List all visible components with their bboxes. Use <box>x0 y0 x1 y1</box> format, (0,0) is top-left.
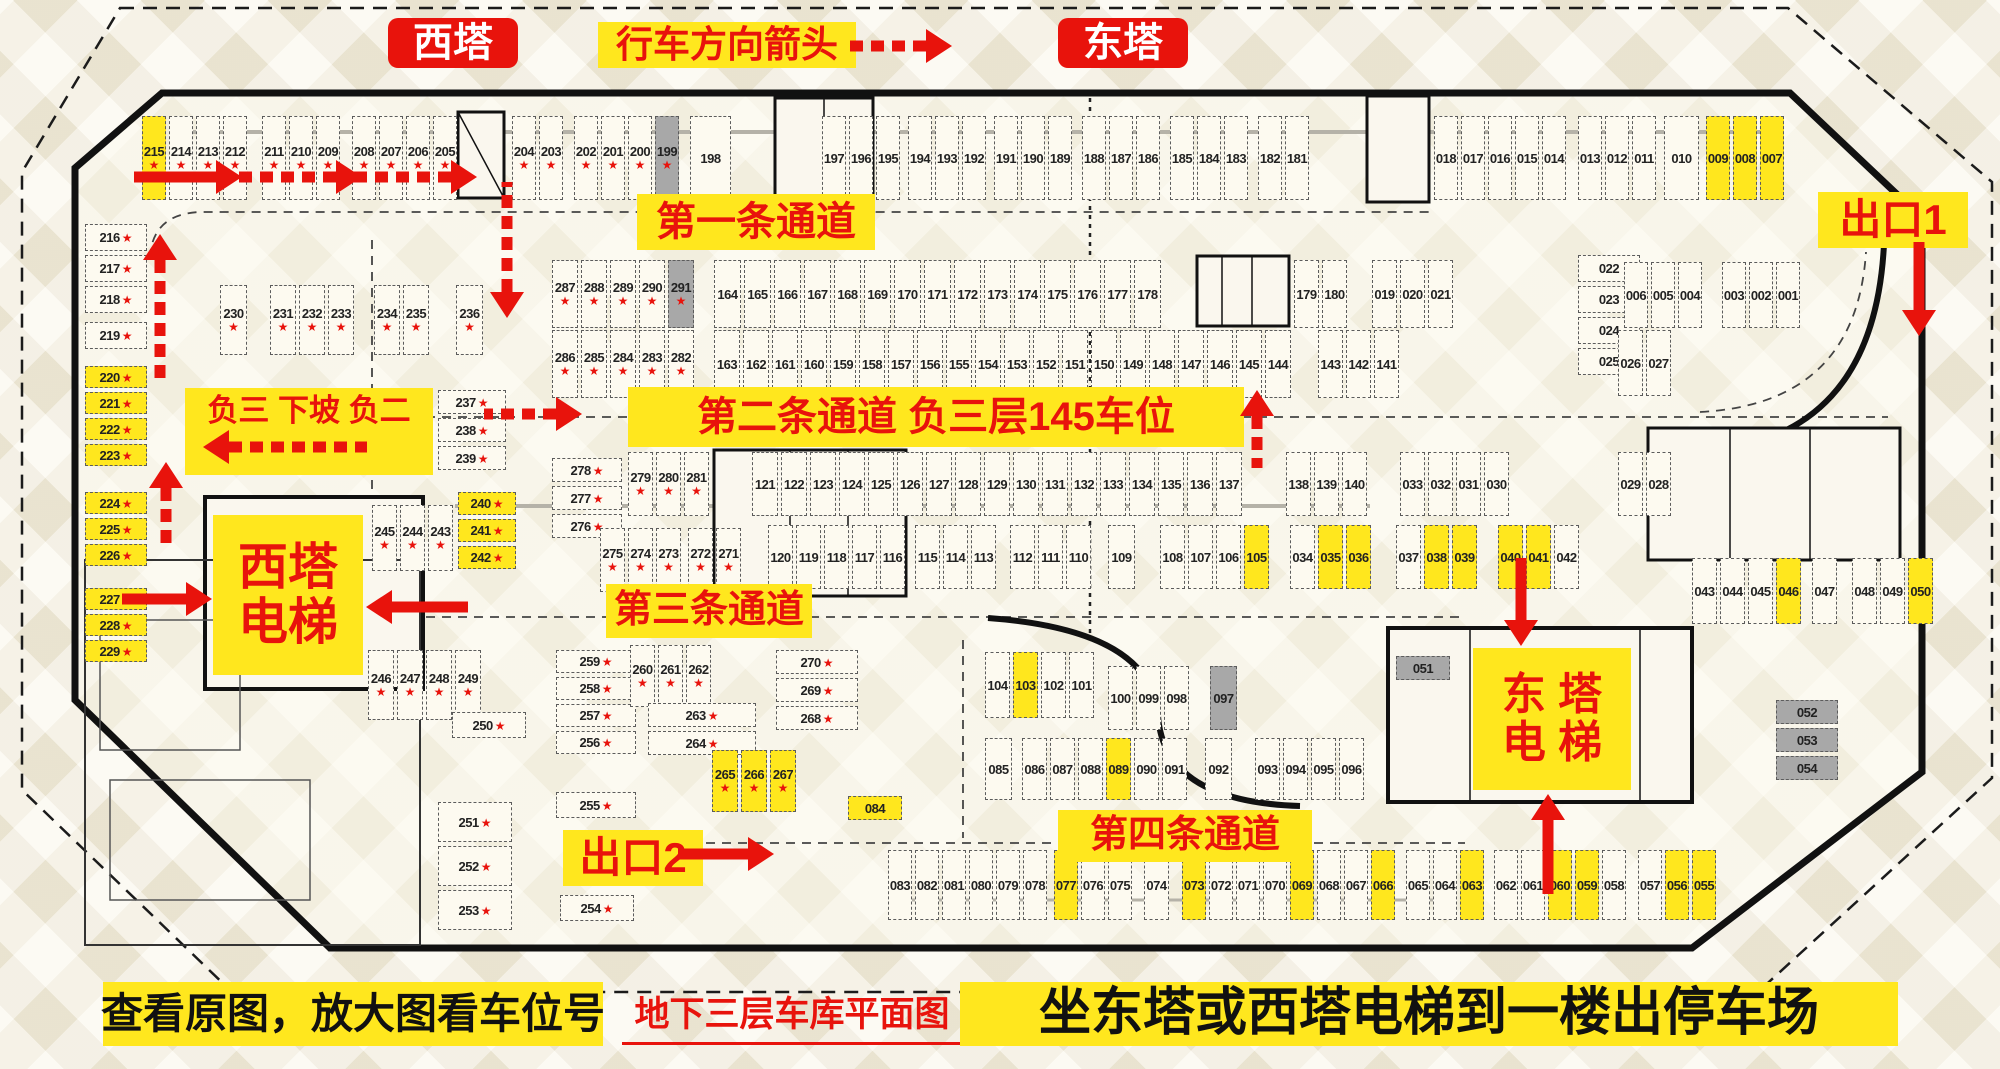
parking-stall-120: 120 <box>768 525 793 589</box>
parking-group-left-227: 227★228★229★ <box>85 588 147 666</box>
parking-group-br-065: 065064063 <box>1406 850 1487 920</box>
star-icon: ★ <box>230 159 241 171</box>
parking-stall-281: 281★ <box>684 452 709 516</box>
parking-stall-061: 061 <box>1521 850 1545 920</box>
parking-stall-202: 202★ <box>574 116 598 200</box>
stall-number: 247 <box>400 672 420 685</box>
stall-number: 074 <box>1146 879 1166 892</box>
parking-stall-252: 252★ <box>438 846 512 886</box>
stall-number: 268 <box>801 712 821 725</box>
stall-number: 086 <box>1024 763 1044 776</box>
stall-number: 140 <box>1344 478 1364 491</box>
stall-number: 218 <box>100 293 120 306</box>
star-icon: ★ <box>635 485 646 497</box>
parking-stall-060: 060 <box>1548 850 1572 920</box>
parking-stall-228: 228★ <box>85 614 147 636</box>
star-icon: ★ <box>723 561 734 573</box>
stall-number: 082 <box>917 879 937 892</box>
exit2-label: 出口2 <box>563 830 703 886</box>
parking-stall-028: 028 <box>1646 452 1671 516</box>
parking-stall-137: 137 <box>1216 452 1242 516</box>
parking-group-bm-100: 100099098 <box>1108 666 1192 730</box>
stall-number: 192 <box>964 152 984 165</box>
lane4-label: 第四条通道 <box>1058 810 1312 862</box>
parking-group-b-254: 254★ <box>560 895 634 925</box>
parking-stall-237: 237★ <box>438 390 506 414</box>
stall-number: 211 <box>264 145 283 158</box>
stall-number: 189 <box>1050 152 1070 165</box>
parking-stall-255: 255★ <box>556 792 636 818</box>
parking-group-top-013: 013012011 <box>1578 116 1659 200</box>
parking-stall-174: 174 <box>1014 260 1041 328</box>
parking-stall-080: 080 <box>969 850 993 920</box>
star-icon: ★ <box>379 539 390 551</box>
parking-stall-106: 106 <box>1216 525 1241 589</box>
stall-number: 125 <box>871 478 891 491</box>
parking-stall-257: 257★ <box>556 704 636 727</box>
parking-stall-239: 239★ <box>438 446 506 470</box>
stall-number: 231 <box>273 307 293 320</box>
stall-number: 193 <box>937 152 957 165</box>
parking-stall-221: 221★ <box>85 392 147 414</box>
stall-number: 164 <box>717 288 737 301</box>
stall-number: 206 <box>408 145 428 158</box>
stall-number: 222 <box>100 423 120 436</box>
star-icon: ★ <box>602 710 613 722</box>
stall-number: 106 <box>1218 551 1238 564</box>
parking-group-top-208: 208★207★ <box>352 116 406 200</box>
star-icon: ★ <box>386 159 397 171</box>
stall-number: 085 <box>988 763 1008 776</box>
stall-number: 272 <box>690 547 710 560</box>
parking-stall-181: 181 <box>1285 116 1309 200</box>
stall-number: 039 <box>1454 551 1474 564</box>
stall-number: 120 <box>770 551 790 564</box>
parking-stall-176: 176 <box>1074 260 1101 328</box>
stall-number: 216 <box>100 231 120 244</box>
parking-stall-017: 017 <box>1461 116 1485 200</box>
star-icon: ★ <box>376 686 387 698</box>
parking-stall-097: 097 <box>1210 666 1237 730</box>
parking-stall-165: 165 <box>744 260 771 328</box>
parking-stall-127: 127 <box>926 452 952 516</box>
stall-number: 276 <box>571 520 591 533</box>
stall-number: 225 <box>100 523 120 536</box>
stall-number: 022 <box>1599 262 1619 275</box>
parking-group-n-109: 109 <box>1108 525 1138 589</box>
stall-number: 121 <box>755 478 775 491</box>
stall-number: 290 <box>642 281 662 294</box>
parking-stall-014: 014 <box>1542 116 1566 200</box>
stall-number: 156 <box>920 358 940 371</box>
parking-stall-218: 218★ <box>85 286 147 313</box>
parking-stall-045: 045 <box>1748 558 1773 624</box>
stall-number: 128 <box>958 478 978 491</box>
parking-group-n-108: 108107106105 <box>1160 525 1272 589</box>
parking-stall-214: 214★ <box>169 116 193 200</box>
stall-number: 064 <box>1435 879 1455 892</box>
parking-stall-124: 124 <box>839 452 865 516</box>
star-icon: ★ <box>676 295 687 307</box>
parking-stall-178: 178 <box>1134 260 1161 328</box>
star-icon: ★ <box>413 159 424 171</box>
parking-stall-111: 111 <box>1038 525 1063 589</box>
parking-stall-288: 288★ <box>581 260 607 328</box>
stall-number: 252 <box>459 860 479 873</box>
star-icon: ★ <box>607 561 618 573</box>
parking-stall-008: 008 <box>1733 116 1757 200</box>
parking-stall-063: 063 <box>1460 850 1484 920</box>
parking-stall-249: 249★ <box>455 650 481 720</box>
stall-number: 159 <box>833 358 853 371</box>
parking-stall-201: 201★ <box>601 116 625 200</box>
stall-number: 171 <box>927 288 947 301</box>
parking-stall-068: 068 <box>1317 850 1341 920</box>
stall-number: 051 <box>1413 662 1433 675</box>
parking-stall-005: 005 <box>1651 262 1675 328</box>
parking-group-b-270: 270★269★268★ <box>776 650 858 734</box>
parking-stall-203: 203★ <box>539 116 563 200</box>
parking-stall-215: 215★ <box>142 116 166 200</box>
star-icon: ★ <box>122 524 133 536</box>
stall-number: 013 <box>1580 152 1600 165</box>
parking-group-b-084: 084 <box>848 796 902 824</box>
parking-stall-043: 043 <box>1692 558 1717 624</box>
star-icon: ★ <box>647 365 658 377</box>
parking-stall-140: 140 <box>1342 452 1367 516</box>
parking-group-n-272: 272★271★ <box>688 528 744 592</box>
parking-stall-143: 143 <box>1318 330 1343 398</box>
garage-floor-plan: 215★214★213★212★211★210★209★208★207★206★… <box>0 0 2000 1069</box>
parking-group-n-034: 034035036 <box>1290 525 1374 589</box>
parking-stall-229: 229★ <box>85 640 147 662</box>
star-icon: ★ <box>663 561 674 573</box>
stall-number: 237 <box>456 396 476 409</box>
stall-number: 243 <box>430 525 450 538</box>
stall-number: 104 <box>987 679 1007 692</box>
parking-group-bm-097: 097 <box>1210 666 1240 730</box>
stall-number: 014 <box>1544 152 1564 165</box>
stall-number: 200 <box>630 145 650 158</box>
parking-stall-268: 268★ <box>776 706 858 730</box>
stall-number: 114 <box>946 551 965 564</box>
parking-stall-269: 269★ <box>776 678 858 702</box>
parking-stall-009: 009 <box>1706 116 1730 200</box>
stall-number: 168 <box>837 288 857 301</box>
stall-number: 162 <box>746 358 766 371</box>
parking-stall-231: 231★ <box>270 285 296 355</box>
star-icon: ★ <box>603 903 614 915</box>
parking-stall-078: 078 <box>1023 850 1047 920</box>
stall-number: 031 <box>1458 478 1478 491</box>
parking-stall-040: 040 <box>1498 525 1523 589</box>
stall-number: 245 <box>374 525 394 538</box>
star-icon: ★ <box>602 656 613 668</box>
stall-number: 080 <box>971 879 991 892</box>
stall-number: 136 <box>1190 478 1210 491</box>
star-icon: ★ <box>478 397 489 409</box>
star-icon: ★ <box>635 159 646 171</box>
stall-number: 138 <box>1288 478 1308 491</box>
parking-stall-195: 195 <box>876 116 900 200</box>
parking-stall-093: 093 <box>1255 738 1280 800</box>
stall-number: 169 <box>867 288 887 301</box>
parking-stall-044: 044 <box>1720 558 1745 624</box>
parking-stall-212: 212★ <box>223 116 247 200</box>
stall-number: 175 <box>1047 288 1067 301</box>
stall-number: 002 <box>1751 289 1771 302</box>
parking-stall-105: 105 <box>1244 525 1269 589</box>
parking-stall-084: 084 <box>848 796 902 820</box>
parking-stall-260: 260★ <box>630 645 655 707</box>
parking-stall-205: 205★ <box>433 116 457 200</box>
stall-number: 259 <box>580 655 600 668</box>
stall-number: 183 <box>1226 152 1246 165</box>
parking-group-rb-026: 026027 <box>1618 330 1674 396</box>
stall-number: 148 <box>1152 358 1172 371</box>
stall-number: 030 <box>1486 478 1506 491</box>
stall-number: 007 <box>1762 152 1782 165</box>
parking-stall-142: 142 <box>1346 330 1371 398</box>
stall-number: 184 <box>1199 152 1219 165</box>
parking-stall-251: 251★ <box>438 802 512 842</box>
stall-number: 235 <box>406 307 426 320</box>
stall-number: 004 <box>1680 289 1700 302</box>
stall-number: 287 <box>555 281 575 294</box>
stall-number: 043 <box>1694 585 1714 598</box>
parking-stall-002: 002 <box>1749 262 1773 328</box>
floor-plan-title: 地下三层车库平面图 <box>622 988 962 1045</box>
star-icon: ★ <box>481 817 492 829</box>
stall-number: 066 <box>1373 879 1393 892</box>
parking-stall-278: 278★ <box>552 458 622 482</box>
parking-stall-119: 119 <box>796 525 821 589</box>
stall-number: 172 <box>957 288 977 301</box>
stall-number: 020 <box>1402 288 1422 301</box>
stall-number: 045 <box>1750 585 1770 598</box>
parking-stall-189: 189 <box>1048 116 1072 200</box>
stall-number: 132 <box>1074 478 1094 491</box>
parking-group-bm-085: 085 <box>985 738 1015 800</box>
parking-stall-033: 033 <box>1400 452 1425 516</box>
parking-stall-289: 289★ <box>610 260 636 328</box>
parking-stall-254: 254★ <box>560 895 634 921</box>
parking-group-top-182: 182181 <box>1258 116 1312 200</box>
parking-stall-089: 089 <box>1106 738 1131 800</box>
parking-stall-054: 054 <box>1776 756 1838 780</box>
stall-number: 233 <box>331 307 351 320</box>
stall-number: 001 <box>1778 289 1798 302</box>
parking-stall-220: 220★ <box>85 366 147 388</box>
parking-stall-092: 092 <box>1205 738 1232 800</box>
parking-stall-131: 131 <box>1042 452 1068 516</box>
star-icon: ★ <box>176 159 187 171</box>
stall-number: 103 <box>1015 679 1035 692</box>
stall-number: 018 <box>1436 152 1456 165</box>
star-icon: ★ <box>481 905 492 917</box>
parking-stall-213: 213★ <box>196 116 220 200</box>
parking-stall-041: 041 <box>1526 525 1551 589</box>
parking-stall-196: 196 <box>849 116 873 200</box>
stall-number: 015 <box>1517 152 1537 165</box>
stall-number: 042 <box>1556 551 1576 564</box>
parking-group-top-202: 202★201★200★199★ <box>574 116 682 200</box>
parking-stall-217: 217★ <box>85 255 147 282</box>
parking-group-c-143: 143142141 <box>1318 330 1402 398</box>
star-icon: ★ <box>720 782 731 794</box>
parking-stall-211: 211★ <box>262 116 286 200</box>
stall-number: 255 <box>580 799 600 812</box>
parking-stall-248: 248★ <box>426 650 452 720</box>
stall-number: 196 <box>851 152 871 165</box>
parking-group-b-246: 246★247★248★249★ <box>368 650 484 720</box>
stall-number: 241 <box>471 524 491 537</box>
stall-number: 127 <box>929 478 949 491</box>
parking-stall-037: 037 <box>1396 525 1421 589</box>
parking-group-br-062: 062061060059058 <box>1494 850 1629 920</box>
stall-number: 087 <box>1052 763 1072 776</box>
stall-number: 154 <box>978 358 998 371</box>
star-icon: ★ <box>228 321 239 333</box>
stall-number: 093 <box>1257 763 1277 776</box>
parking-group-n-120: 120119118117116 <box>768 525 908 589</box>
parking-stall-223: 223★ <box>85 444 147 466</box>
star-icon: ★ <box>823 713 834 725</box>
parking-stall-277: 277★ <box>552 486 622 510</box>
star-icon: ★ <box>665 677 676 689</box>
west-elevator-label: 西塔 电梯 <box>213 515 363 675</box>
stall-number: 111 <box>1041 551 1060 564</box>
stall-number: 060 <box>1550 879 1570 892</box>
star-icon: ★ <box>307 321 318 333</box>
stall-number: 006 <box>1626 289 1646 302</box>
parking-stall-113: 113 <box>971 525 996 589</box>
parking-stall-038: 038 <box>1424 525 1449 589</box>
star-icon: ★ <box>581 159 592 171</box>
parking-stall-138: 138 <box>1286 452 1311 516</box>
parking-stall-247: 247★ <box>397 650 423 720</box>
parking-group-c-019: 019020021 <box>1372 260 1456 328</box>
parking-stall-136: 136 <box>1187 452 1213 516</box>
stall-number: 069 <box>1292 879 1312 892</box>
stall-number: 050 <box>1910 585 1930 598</box>
parking-stall-133: 133 <box>1100 452 1126 516</box>
star-icon: ★ <box>122 450 133 462</box>
stall-number: 157 <box>891 358 911 371</box>
stall-number: 056 <box>1667 879 1687 892</box>
stall-number: 021 <box>1430 288 1450 301</box>
parking-stall-007: 007 <box>1760 116 1784 200</box>
stall-number: 058 <box>1604 879 1624 892</box>
stall-number: 212 <box>225 145 245 158</box>
parking-group-top-197: 197196195 <box>822 116 903 200</box>
star-icon: ★ <box>495 720 506 732</box>
parking-stall-238: 238★ <box>438 418 506 442</box>
parking-stall-082: 082 <box>915 850 939 920</box>
west-elevator-line2: 电梯 <box>238 595 338 650</box>
parking-stall-052: 052 <box>1776 700 1838 724</box>
parking-group-row2-231: 231★232★233★ <box>270 285 357 355</box>
stall-number: 041 <box>1528 551 1548 564</box>
parking-stall-110: 110 <box>1066 525 1091 589</box>
stall-number: 149 <box>1123 358 1143 371</box>
stall-number: 034 <box>1292 551 1312 564</box>
stall-number: 038 <box>1426 551 1446 564</box>
parking-stall-170: 170 <box>894 260 921 328</box>
parking-group-n-048: 048049050 <box>1852 558 1936 624</box>
stall-number: 049 <box>1882 585 1902 598</box>
parking-stall-035: 035 <box>1318 525 1343 589</box>
stall-number: 135 <box>1161 478 1181 491</box>
stall-number: 059 <box>1577 879 1597 892</box>
parking-stall-253: 253★ <box>438 890 512 930</box>
parking-group-c-164: 1641651661671681691701711721731741751761… <box>714 260 1164 328</box>
parking-stall-116: 116 <box>880 525 905 589</box>
stall-number: 025 <box>1599 355 1619 368</box>
stall-number: 165 <box>747 288 767 301</box>
parking-stall-034: 034 <box>1290 525 1315 589</box>
parking-stall-053: 053 <box>1776 728 1838 752</box>
star-icon: ★ <box>149 159 160 171</box>
parking-group-bm-051: 051 <box>1396 656 1450 684</box>
east-elevator-line2: 电 梯 <box>1502 719 1602 767</box>
parking-stall-036: 036 <box>1346 525 1371 589</box>
stall-number: 289 <box>613 281 633 294</box>
star-icon: ★ <box>122 594 133 606</box>
stall-number: 107 <box>1190 551 1210 564</box>
parking-stall-250: 250★ <box>452 712 526 738</box>
stall-number: 057 <box>1640 879 1660 892</box>
stall-number: 054 <box>1797 762 1817 775</box>
stall-number: 269 <box>801 684 821 697</box>
parking-stall-027: 027 <box>1646 330 1671 396</box>
parking-stall-081: 081 <box>942 850 966 920</box>
parking-stall-242: 242★ <box>458 546 516 569</box>
lane1-label: 第一条通道 <box>637 194 875 250</box>
parking-group-n-043: 043044045046 <box>1692 558 1804 624</box>
parking-group-top-191: 191190189 <box>994 116 1075 200</box>
parking-stall-004: 004 <box>1678 262 1702 328</box>
stall-number: 123 <box>813 478 833 491</box>
stall-number: 100 <box>1110 692 1130 705</box>
parking-stall-031: 031 <box>1456 452 1481 516</box>
star-icon: ★ <box>519 159 530 171</box>
star-icon: ★ <box>693 677 704 689</box>
stall-number: 019 <box>1374 288 1394 301</box>
parking-stall-188: 188 <box>1082 116 1106 200</box>
parking-stall-117: 117 <box>852 525 877 589</box>
parking-stall-262: 262★ <box>686 645 711 707</box>
stall-number: 188 <box>1084 152 1104 165</box>
stall-number: 131 <box>1045 478 1065 491</box>
star-icon: ★ <box>122 424 133 436</box>
parking-stall-094: 094 <box>1283 738 1308 800</box>
stall-number: 226 <box>100 549 120 562</box>
stall-number: 195 <box>878 152 898 165</box>
parking-stall-087: 087 <box>1050 738 1075 800</box>
star-icon: ★ <box>823 657 834 669</box>
stall-number: 161 <box>775 358 795 371</box>
stall-number: 224 <box>100 497 120 510</box>
star-icon: ★ <box>608 159 619 171</box>
star-icon: ★ <box>122 263 133 275</box>
star-icon: ★ <box>823 685 834 697</box>
stall-number: 079 <box>998 879 1018 892</box>
stall-number: 097 <box>1213 692 1233 705</box>
stall-number: 215 <box>144 145 164 158</box>
star-icon: ★ <box>635 561 646 573</box>
stall-number: 061 <box>1523 879 1543 892</box>
